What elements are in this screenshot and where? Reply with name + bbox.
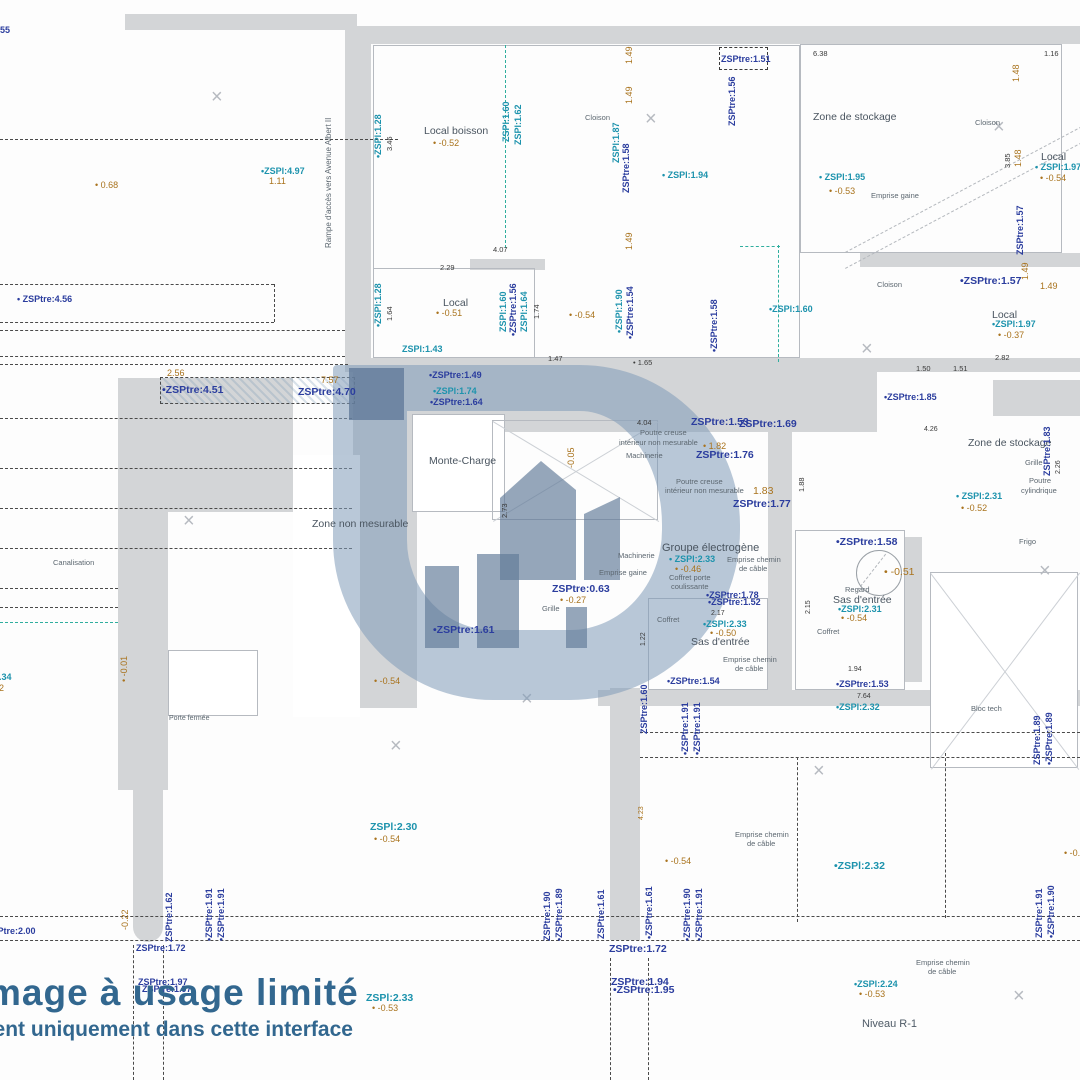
plan-annotation: coulissante bbox=[671, 583, 709, 591]
dashed-line bbox=[0, 418, 352, 419]
dashed-line bbox=[0, 322, 274, 323]
plan-annotation: 2.34 bbox=[0, 673, 12, 682]
plan-annotation: •ZSPl:1.28 bbox=[374, 114, 383, 158]
watermark-text-line1: mage à usage limité bbox=[0, 972, 359, 1014]
plan-annotation: •ZSPl:4.97 bbox=[261, 167, 305, 176]
plan-annotation: •ZSPtre:1.85 bbox=[884, 393, 937, 402]
plan-annotation: •ZSPl:1.97 bbox=[992, 320, 1036, 329]
plan-annotation: • -0.54 bbox=[1040, 174, 1066, 183]
wall-segment bbox=[125, 14, 357, 30]
plan-annotation: 2.26 bbox=[1055, 460, 1062, 474]
dashed-line bbox=[0, 508, 352, 509]
plan-annotation: ZSPtre:4.70 bbox=[298, 387, 356, 398]
plan-annotation: intérieur non mesurable bbox=[665, 487, 744, 495]
dashed-line bbox=[0, 548, 352, 549]
plan-annotation: •ZSPtre:1.53 bbox=[836, 680, 889, 689]
wall-segment bbox=[133, 790, 163, 942]
plan-annotation: 4.04 bbox=[637, 419, 652, 427]
dashed-line bbox=[505, 45, 506, 248]
plan-annotation: Coffret bbox=[657, 616, 679, 624]
plan-annotation: Local bbox=[443, 298, 468, 309]
plan-annotation: Groupe électrogène bbox=[662, 543, 759, 554]
plan-annotation: Zone de stockage bbox=[968, 438, 1051, 449]
plan-annotation: •ZSPtre:1.61 bbox=[645, 886, 654, 939]
plan-annotation: 2.29 bbox=[440, 264, 455, 272]
plan-annotation: •ZSPtre:4.51 bbox=[162, 385, 223, 396]
plan-annotation: 1.50 bbox=[916, 365, 931, 373]
plan-annotation: •ZSPl:1.74 bbox=[433, 387, 477, 396]
plan-annotation: Poutre creuse bbox=[676, 478, 723, 486]
plan-annotation: Coffret porte bbox=[669, 574, 711, 582]
dashed-line bbox=[0, 940, 1080, 941]
plan-annotation: ZSPtre:1.58 bbox=[622, 143, 631, 193]
plan-annotation: • ZSPl:1.97 bbox=[1035, 163, 1080, 172]
plan-annotation: • -0.52 bbox=[961, 504, 987, 513]
plan-annotation: • -0.54 bbox=[841, 614, 867, 623]
plan-annotation: • -0.51 bbox=[884, 567, 915, 578]
dashed-line bbox=[0, 607, 118, 608]
cross-mark: × bbox=[1039, 561, 1051, 581]
plan-annotation: Cloison bbox=[975, 119, 1000, 127]
plan-annotation: Machinerie bbox=[626, 452, 663, 460]
plan-annotation: •ZSPtre:1.54 bbox=[626, 286, 635, 339]
plan-annotation: ZSPl:1.64 bbox=[520, 291, 529, 332]
plan-annotation: •ZSPl:2.32 bbox=[836, 703, 880, 712]
watermark-text-line2: résent uniquement dans cette interface bbox=[0, 1018, 353, 1042]
watermark-logo-corner-square bbox=[349, 368, 404, 420]
plan-annotation: • -0.54 bbox=[374, 835, 400, 844]
plan-annotation: 1.22 bbox=[640, 632, 647, 646]
room-outline bbox=[930, 572, 1078, 768]
plan-annotation: ZSPtre:1.69 bbox=[739, 419, 797, 430]
plan-annotation: •ZSPtre:1.91 bbox=[695, 888, 704, 941]
plan-annotation: Sas d'entrée bbox=[691, 637, 750, 648]
plan-annotation: 2.56 bbox=[167, 369, 185, 378]
plan-annotation: ZSPl:1.60 bbox=[499, 291, 508, 332]
plan-annotation: 1.49 bbox=[625, 232, 634, 250]
plan-annotation: • ZSPtre:4.56 bbox=[17, 295, 72, 304]
plan-annotation: 2.15 bbox=[805, 600, 812, 614]
plan-annotation: Emprise chemin bbox=[727, 556, 781, 564]
plan-annotation: ZSPtre:1.72 bbox=[136, 944, 186, 953]
plan-annotation: ZSPl:1.43 bbox=[402, 345, 443, 354]
plan-annotation: 1.48 bbox=[1014, 149, 1023, 167]
plan-annotation: •ZSPl:1.60 bbox=[769, 305, 813, 314]
plan-annotation: Emprise chemin bbox=[916, 959, 970, 967]
plan-annotation: 1.16 bbox=[1044, 50, 1059, 58]
floor-plan-canvas: mage à usage limité résent uniquement da… bbox=[0, 0, 1080, 1080]
wall-segment bbox=[993, 380, 1080, 416]
plan-annotation: ZSPtre:1.61 bbox=[597, 889, 606, 939]
plan-annotation: ZSPtre:1.72 bbox=[609, 944, 667, 955]
dashed-line bbox=[640, 757, 1080, 758]
plan-annotation: • -0.53 bbox=[372, 1004, 398, 1013]
plan-annotation: 4.23 bbox=[638, 806, 645, 820]
wall-segment bbox=[905, 537, 922, 682]
plan-annotation: 1.11 bbox=[269, 177, 286, 186]
plan-annotation: •ZSPtre:1.54 bbox=[667, 677, 720, 686]
plan-annotation: 2.17 bbox=[711, 610, 725, 617]
plan-annotation: Emprise chemin bbox=[723, 656, 777, 664]
plan-annotation: • ZSPl:1.94 bbox=[662, 171, 708, 180]
plan-annotation: Monte-Charge bbox=[429, 456, 496, 467]
plan-annotation: ZSPtre:1.60 bbox=[640, 684, 649, 734]
plan-annotation: 55 bbox=[0, 26, 10, 35]
plan-annotation: •ZSPtre:1.58 bbox=[710, 299, 719, 352]
plan-annotation: de câble bbox=[747, 840, 775, 848]
plan-annotation: ZSPtre:0.63 bbox=[552, 584, 610, 595]
plan-annotation: • -0.52 bbox=[433, 139, 459, 148]
plan-annotation: ZSPtre:2.00 bbox=[0, 927, 36, 936]
plan-annotation: 1.49 bbox=[625, 46, 634, 64]
plan-annotation: ZSPtre:1.90 bbox=[543, 891, 552, 941]
plan-annotation: Frigo bbox=[1019, 538, 1036, 546]
plan-annotation: 6.38 bbox=[813, 50, 828, 58]
plan-annotation: Coffret bbox=[817, 628, 839, 636]
plan-annotation: Local bbox=[1041, 152, 1066, 163]
plan-annotation: • -0.51 bbox=[436, 309, 462, 318]
dashed-line bbox=[274, 284, 275, 322]
plan-annotation: •ZSPtre:1.91 bbox=[205, 888, 214, 941]
plan-annotation: 2.73 bbox=[501, 503, 509, 518]
plan-annotation: Cloison bbox=[877, 281, 902, 289]
wall-segment bbox=[345, 30, 371, 371]
plan-annotation: ZSPtre:1.51 bbox=[721, 55, 771, 64]
dashed-line bbox=[0, 330, 345, 331]
plan-annotation: •ZSPtre:1.56 bbox=[509, 283, 518, 336]
plan-annotation: • -0.01 bbox=[120, 656, 129, 682]
wall-segment bbox=[118, 512, 168, 790]
plan-annotation: Porte fermée bbox=[169, 715, 209, 722]
plan-annotation: Poutre bbox=[1029, 477, 1051, 485]
plan-annotation: ZSPtre:1.89 bbox=[1033, 715, 1042, 765]
plan-annotation: Machinerie bbox=[618, 552, 655, 560]
dashed-line bbox=[0, 284, 274, 285]
cross-mark: × bbox=[861, 339, 873, 359]
plan-annotation: •ZSPtre:1.52 bbox=[708, 598, 761, 607]
dashed-line bbox=[0, 916, 1080, 917]
cross-mark: × bbox=[183, 511, 195, 531]
cross-mark: × bbox=[211, 87, 223, 107]
plan-annotation: 7.57 bbox=[321, 376, 339, 385]
plan-annotation: •ZSPtre:1.90 bbox=[1047, 885, 1056, 938]
plan-annotation: 1.49 bbox=[1021, 262, 1030, 280]
dashed-line bbox=[0, 364, 348, 365]
plan-annotation: •ZSPtre:1.61 bbox=[433, 625, 494, 636]
plan-annotation: •ZSPtre:1.95 bbox=[613, 985, 674, 996]
plan-annotation: • -0.54 bbox=[1064, 849, 1080, 858]
plan-annotation: • -0.27 bbox=[560, 596, 586, 605]
plan-annotation: 1.49 bbox=[1040, 282, 1058, 291]
plan-annotation: •ZSPtre:1.49 bbox=[429, 371, 482, 380]
dashed-line bbox=[740, 246, 780, 247]
plan-annotation: 1.83 bbox=[753, 486, 773, 497]
plan-annotation: 4.26 bbox=[924, 426, 938, 433]
plan-annotation: ZSPl:1.60 bbox=[502, 101, 511, 142]
plan-annotation: •ZSPtre:1.91 bbox=[693, 702, 702, 755]
plan-annotation: ZSPl:2.33 bbox=[366, 993, 413, 1004]
plan-annotation: • ZSPl:2.33 bbox=[669, 555, 715, 564]
plan-annotation: cylindrique bbox=[1021, 487, 1057, 495]
plan-annotation: ZSPtre:1.76 bbox=[696, 450, 754, 461]
plan-annotation: Grille bbox=[542, 605, 560, 613]
cross-mark: × bbox=[390, 736, 402, 756]
cross-mark: × bbox=[1013, 986, 1025, 1006]
dashed-line bbox=[0, 356, 345, 357]
plan-annotation: Bloc tech bbox=[971, 705, 1002, 713]
plan-annotation: Grille bbox=[1025, 459, 1043, 467]
cross-mark: × bbox=[645, 109, 657, 129]
plan-annotation: • -0.53 bbox=[859, 990, 885, 999]
plan-annotation: 2.82 bbox=[995, 354, 1010, 362]
dashed-line bbox=[640, 732, 1080, 733]
cross-mark: × bbox=[813, 761, 825, 781]
wall-segment bbox=[860, 253, 1080, 267]
plan-annotation: Canalisation bbox=[53, 559, 94, 567]
dashed-line bbox=[945, 753, 946, 918]
plan-annotation: Rampe d'accès vers Avenue Albert II bbox=[325, 118, 333, 248]
plan-annotation: 42 bbox=[0, 684, 4, 693]
dashed-line bbox=[0, 622, 118, 623]
plan-annotation: 7.64 bbox=[857, 693, 871, 700]
plan-annotation: •ZSPtre:1.91 bbox=[217, 888, 226, 941]
plan-annotation: 3.85 bbox=[1004, 153, 1012, 168]
plan-annotation: -0.22 bbox=[121, 909, 130, 930]
wall-segment bbox=[357, 26, 1080, 44]
plan-annotation: 1.49 bbox=[625, 86, 634, 104]
plan-annotation: •ZSPl:2.24 bbox=[854, 980, 898, 989]
plan-annotation: • ZSPl:1.95 bbox=[819, 173, 865, 182]
plan-annotation: •ZSPtre:1.89 bbox=[555, 888, 564, 941]
plan-annotation: -0.05 bbox=[567, 447, 576, 468]
plan-annotation: • 0.68 bbox=[95, 181, 118, 190]
plan-annotation: Emprise chemin bbox=[735, 831, 789, 839]
plan-annotation: Cloison bbox=[585, 114, 610, 122]
dashed-line bbox=[0, 468, 352, 469]
plan-annotation: de câble bbox=[739, 565, 767, 573]
plan-annotation: ZSPl:1.62 bbox=[514, 104, 523, 145]
plan-annotation: ZSPtre:1.56 bbox=[728, 76, 737, 126]
plan-annotation: ZSPl:1.87 bbox=[612, 122, 621, 163]
plan-annotation: 1.94 bbox=[848, 666, 862, 673]
plan-annotation: •ZSPtre:1.57 bbox=[960, 276, 1021, 287]
plan-annotation: ZSPtre:1.62 bbox=[165, 892, 174, 942]
plan-annotation: •ZSPtre:1.89 bbox=[1045, 712, 1054, 765]
wall-segment bbox=[610, 688, 640, 940]
dashed-line bbox=[0, 139, 398, 140]
level-label: Niveau R-1 bbox=[862, 1018, 917, 1030]
plan-annotation: • -0.54 bbox=[665, 857, 691, 866]
plan-annotation: 1.64 bbox=[386, 306, 394, 321]
plan-annotation: Zone non mesurable bbox=[312, 519, 408, 530]
plan-annotation: ZSPl:2.30 bbox=[370, 822, 417, 833]
plan-annotation: •ZSPtre:1.90 bbox=[683, 888, 692, 941]
plan-annotation: Emprise gaine bbox=[871, 192, 919, 200]
plan-annotation: •ZSPl:1.90 bbox=[615, 289, 624, 333]
plan-annotation: 1.74 bbox=[533, 304, 541, 319]
dashed-line bbox=[0, 588, 118, 589]
room-outline bbox=[168, 650, 258, 716]
plan-annotation: •ZSPl:2.32 bbox=[834, 861, 885, 872]
plan-annotation: • -0.54 bbox=[374, 677, 400, 686]
plan-annotation: intérieur non mesurable bbox=[619, 439, 698, 447]
plan-annotation: • -0.54 bbox=[569, 311, 595, 320]
plan-annotation: • -0.37 bbox=[998, 331, 1024, 340]
plan-annotation: Local boisson bbox=[424, 126, 488, 137]
dashed-line bbox=[797, 757, 798, 922]
plan-annotation: 1.47 bbox=[548, 355, 563, 363]
plan-annotation: ZSPtre:1.77 bbox=[733, 499, 791, 510]
plan-annotation: ZSPtre:1.91 bbox=[1035, 888, 1044, 938]
plan-annotation: Regard bbox=[845, 586, 870, 594]
plan-annotation: •ZSPtre:1.64 bbox=[430, 398, 483, 407]
plan-annotation: Poutre creuse bbox=[640, 429, 687, 437]
plan-annotation: Zone de stockage bbox=[813, 112, 896, 123]
plan-annotation: ZSPtre:1.83 bbox=[1043, 426, 1052, 476]
plan-annotation: 1.48 bbox=[1012, 64, 1021, 82]
plan-annotation: ZSPtre:1.57 bbox=[1016, 205, 1025, 255]
plan-annotation: • 1.65 bbox=[633, 359, 652, 367]
plan-annotation: •ZSPl:1.28 bbox=[374, 283, 383, 327]
plan-annotation: • ZSPl:2.31 bbox=[956, 492, 1002, 501]
plan-annotation: 4.07 bbox=[493, 246, 508, 254]
plan-annotation: 1.88 bbox=[798, 477, 806, 492]
plan-annotation: 3.46 bbox=[386, 136, 394, 151]
plan-annotation: de câble bbox=[928, 968, 956, 976]
plan-annotation: 1.51 bbox=[953, 365, 968, 373]
plan-annotation: •ZSPtre:1.58 bbox=[836, 537, 897, 548]
plan-annotation: de câble bbox=[735, 665, 763, 673]
plan-annotation: • -0.53 bbox=[829, 187, 855, 196]
plan-annotation: •ZSPtre:1.91 bbox=[681, 702, 690, 755]
plan-annotation: Emprise gaine bbox=[599, 569, 647, 577]
